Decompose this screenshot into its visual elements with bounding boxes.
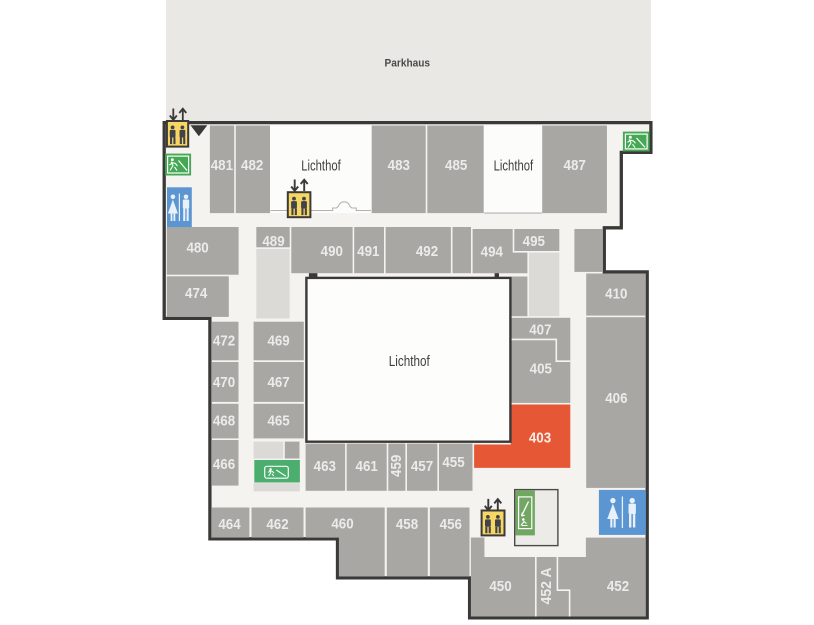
svg-text:406: 406 xyxy=(605,391,627,407)
svg-text:465: 465 xyxy=(267,414,289,430)
svg-text:480: 480 xyxy=(186,241,208,257)
svg-text:461: 461 xyxy=(356,459,378,475)
svg-text:490: 490 xyxy=(321,244,343,260)
svg-text:458: 458 xyxy=(396,517,418,533)
svg-text:494: 494 xyxy=(481,245,504,261)
svg-text:469: 469 xyxy=(267,334,289,350)
svg-text:463: 463 xyxy=(314,459,336,475)
svg-text:466: 466 xyxy=(213,457,235,473)
svg-text:Lichthof: Lichthof xyxy=(494,159,534,175)
svg-text:487: 487 xyxy=(564,158,586,174)
svg-text:Lichthof: Lichthof xyxy=(301,159,341,175)
svg-text:455: 455 xyxy=(442,455,464,471)
svg-text:403: 403 xyxy=(529,430,551,446)
svg-text:492: 492 xyxy=(416,244,438,260)
svg-text:467: 467 xyxy=(267,375,289,391)
svg-text:491: 491 xyxy=(357,244,379,260)
svg-text:485: 485 xyxy=(445,158,467,174)
svg-text:452 A: 452 A xyxy=(539,567,555,604)
svg-text:450: 450 xyxy=(489,579,511,595)
svg-text:495: 495 xyxy=(523,234,545,250)
svg-text:457: 457 xyxy=(411,459,433,475)
svg-text:470: 470 xyxy=(213,375,235,391)
svg-text:Lichthof: Lichthof xyxy=(389,354,431,370)
svg-text:405: 405 xyxy=(530,361,552,377)
svg-text:407: 407 xyxy=(529,323,551,339)
svg-text:Parkhaus: Parkhaus xyxy=(385,57,431,69)
svg-text:410: 410 xyxy=(605,286,627,302)
svg-text:468: 468 xyxy=(213,414,235,430)
svg-text:482: 482 xyxy=(241,158,263,174)
svg-text:464: 464 xyxy=(218,517,241,533)
svg-text:456: 456 xyxy=(440,517,462,533)
svg-text:462: 462 xyxy=(266,517,288,533)
svg-text:472: 472 xyxy=(213,334,235,350)
svg-text:483: 483 xyxy=(388,158,410,174)
svg-text:460: 460 xyxy=(331,517,353,533)
svg-text:459: 459 xyxy=(389,455,405,477)
svg-text:474: 474 xyxy=(185,286,208,302)
svg-text:489: 489 xyxy=(262,234,284,250)
svg-text:481: 481 xyxy=(211,158,233,174)
svg-text:452: 452 xyxy=(607,579,629,595)
